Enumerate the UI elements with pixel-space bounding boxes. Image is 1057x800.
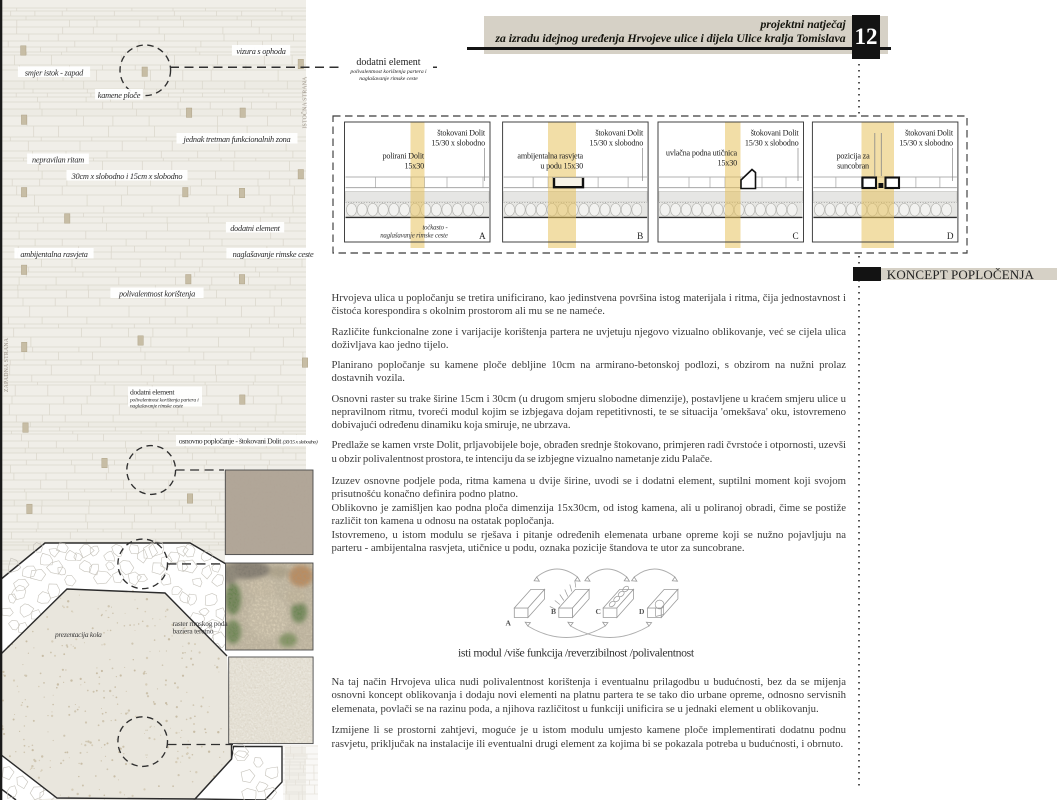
svg-text:dodatni element: dodatni element <box>230 224 280 233</box>
svg-text:15/30 x slobodno: 15/30 x slobodno <box>899 139 953 148</box>
svg-text:A: A <box>479 231 486 241</box>
svg-text:C: C <box>793 231 799 241</box>
svg-text:polirani Dolit: polirani Dolit <box>382 152 424 161</box>
svg-text:D: D <box>947 231 954 241</box>
svg-text:polivalentnost korištenja: polivalentnost korištenja <box>118 289 195 298</box>
svg-text:isti modul /više funkcija /rev: isti modul /više funkcija /reverzibilnos… <box>458 646 695 660</box>
svg-text:baziera teretno: baziera teretno <box>173 627 214 636</box>
svg-text:točkasto -: točkasto - <box>422 225 448 232</box>
svg-text:B: B <box>637 231 643 241</box>
svg-text:uvlačna podna utičnica: uvlačna podna utičnica <box>666 149 738 158</box>
svg-text:suncobran: suncobran <box>837 162 869 171</box>
svg-text:dodatni element: dodatni element <box>130 388 175 397</box>
svg-text:štokovani Dolit: štokovani Dolit <box>905 129 954 138</box>
svg-text:štokovani Dolit: štokovani Dolit <box>437 129 486 138</box>
svg-text:ambijentalna rasvjeta: ambijentalna rasvjeta <box>20 250 87 259</box>
svg-text:A: A <box>506 619 512 628</box>
svg-text:D: D <box>639 607 645 616</box>
svg-text:15x30: 15x30 <box>405 162 425 171</box>
svg-text:štokovani Dolit: štokovani Dolit <box>751 129 800 138</box>
svg-text:prezentacija kola: prezentacija kola <box>54 630 102 639</box>
svg-text:ZAPADNA STRANA: ZAPADNA STRANA <box>4 337 10 392</box>
svg-text:15/30 x slobodno: 15/30 x slobodno <box>745 139 799 148</box>
svg-text:15x30: 15x30 <box>718 159 738 168</box>
svg-text:C: C <box>596 607 601 616</box>
svg-text:smjer istok - zapad: smjer istok - zapad <box>25 68 84 77</box>
svg-text:B: B <box>551 607 556 616</box>
svg-text:naglašavanje rimske ceste: naglašavanje rimske ceste <box>380 233 448 240</box>
svg-text:u podu 15x30: u podu 15x30 <box>540 162 583 171</box>
svg-text:ISTOČNA STRANA: ISTOČNA STRANA <box>301 76 309 129</box>
svg-text:15/30 x slobodno: 15/30 x slobodno <box>589 139 643 148</box>
svg-text:pozicija za: pozicija za <box>836 152 870 161</box>
svg-text:naglašavanje rimske ceste: naglašavanje rimske ceste <box>130 403 184 409</box>
svg-text:štokovani Dolit: štokovani Dolit <box>595 129 644 138</box>
svg-text:ambijentalna rasvjeta: ambijentalna rasvjeta <box>517 152 583 161</box>
svg-text:jednak tretman funkcionalnih z: jednak tretman funkcionalnih zona <box>183 135 291 144</box>
svg-text:vizura s ophoda: vizura s ophoda <box>236 47 285 56</box>
svg-text:nepravilan ritam: nepravilan ritam <box>32 155 84 164</box>
svg-text:15/30 x slobodno: 15/30 x slobodno <box>431 139 485 148</box>
svg-text:kamene ploče: kamene ploče <box>98 91 141 100</box>
svg-text:naglašavanje rimske ceste: naglašavanje rimske ceste <box>233 250 314 259</box>
svg-text:30cm x slobodno i 15cm x slobo: 30cm x slobodno i 15cm x slobodno <box>71 172 183 181</box>
